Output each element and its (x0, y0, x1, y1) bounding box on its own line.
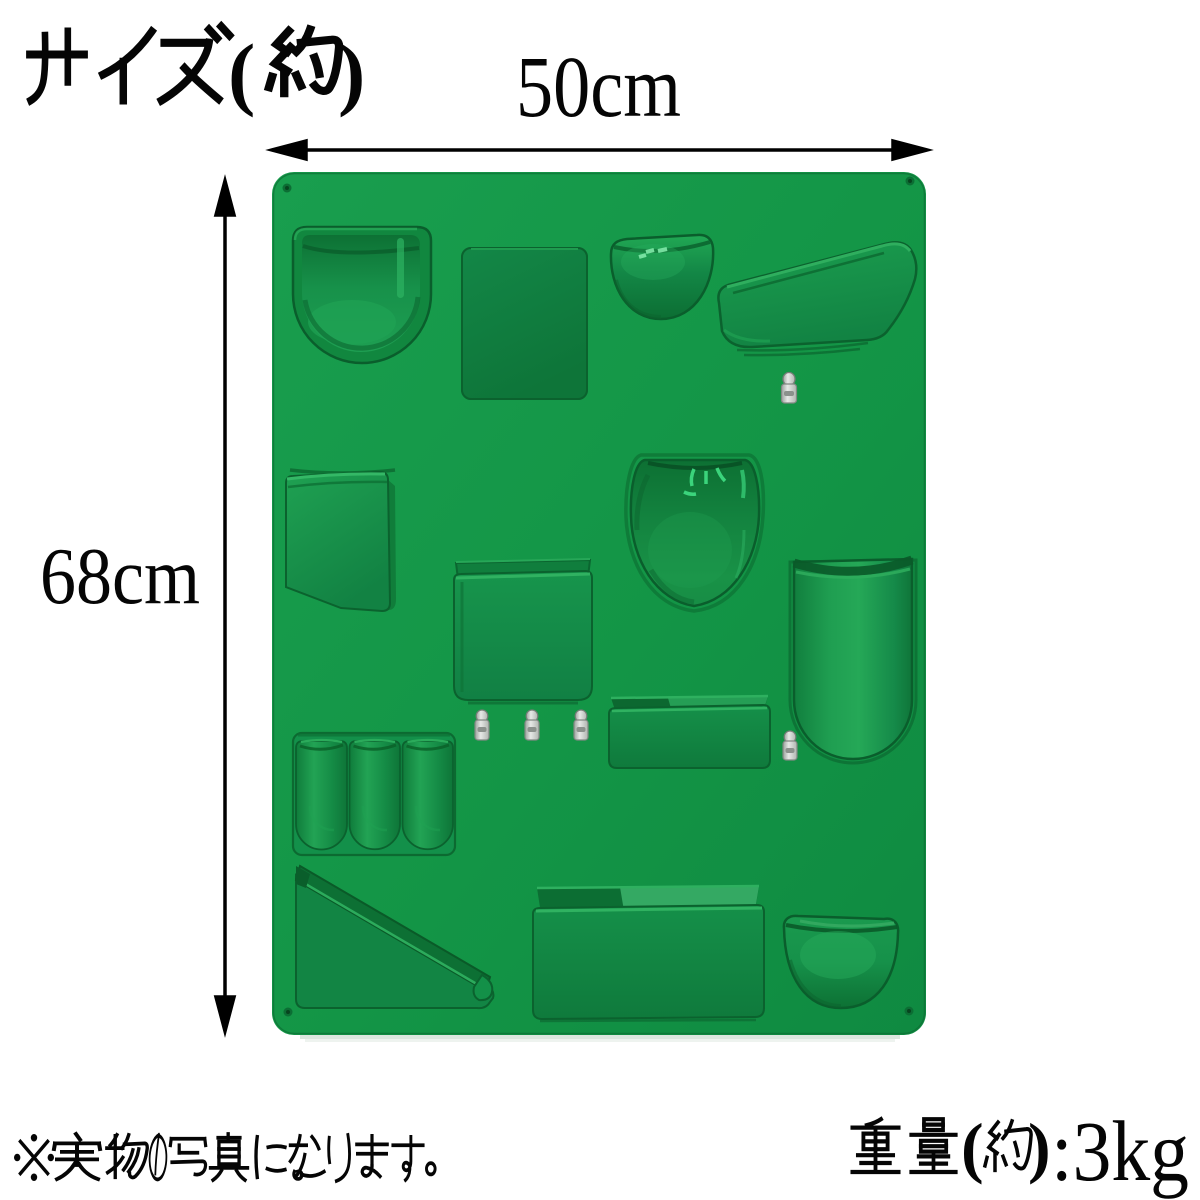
svg-text:(: ( (228, 27, 255, 118)
svg-text::3kg: :3kg (1051, 1103, 1189, 1199)
svg-text:): ) (1028, 1109, 1051, 1185)
svg-text:50cm: 50cm (516, 38, 681, 135)
svg-text:(: ( (961, 1109, 984, 1185)
svg-text:): ) (338, 27, 365, 118)
svg-text:68cm: 68cm (40, 533, 200, 621)
